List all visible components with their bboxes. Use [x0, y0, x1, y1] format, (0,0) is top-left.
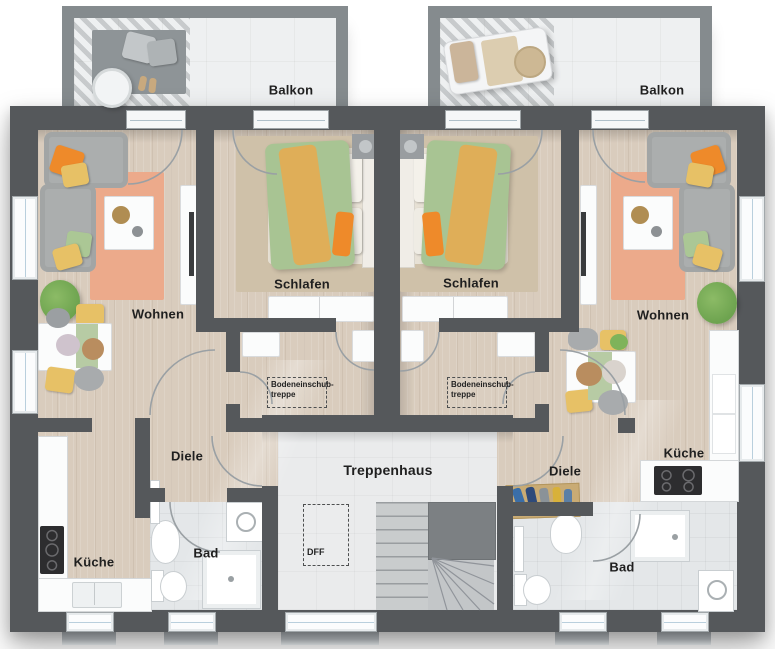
room-label-wohnen-left: Wohnen [132, 307, 184, 322]
wall-right-corridor-east-upper [535, 332, 549, 372]
decor-bowl-left [112, 206, 130, 224]
window-reveal-1 [62, 632, 116, 645]
wreath-right [576, 362, 602, 386]
room-label-kueche-right: Küche [664, 446, 705, 461]
chair-yellow-bottom-left [44, 366, 75, 394]
window-bottom-bath-left [168, 612, 216, 632]
floorplan-canvas: Balkon Balkon Wohnen Schlafen Küche Bad … [0, 0, 775, 649]
room-label-schlafen-left: Schlafen [274, 277, 330, 292]
bath-right-sink [550, 514, 582, 554]
wardrobe-left-door-gap [319, 297, 320, 319]
storage-cabinet-right-2 [401, 330, 424, 362]
window-reveal-4 [555, 632, 609, 645]
room-label-bad-left: Bad [193, 546, 218, 561]
lamp-left [359, 140, 372, 153]
room-label-treppenhaus: Treppenhaus [343, 462, 432, 478]
storage-cabinet-right-1 [497, 332, 535, 357]
window-reveal-5 [657, 632, 711, 645]
decor-candle-right [651, 226, 662, 237]
wall-left-kitchen-hall-divider [135, 418, 150, 518]
kitchen-right-cabinet-2 [712, 414, 736, 454]
balcony-door-wohnen-right [591, 110, 649, 129]
room-label-wohnen-right: Wohnen [637, 308, 689, 323]
tv-right [581, 212, 586, 276]
room-label-diele-left: Diele [171, 449, 203, 464]
wall-right-corridor-south [401, 418, 549, 432]
bath-left-sink [151, 520, 180, 564]
label-attic-right-line1: Bodeneinschub- [451, 380, 514, 389]
balcony-left-rail-left [62, 6, 74, 106]
chair-yellow-top-left [76, 304, 104, 325]
balcony-door-wohnen-left [126, 110, 186, 129]
kitchen-right-cabinet-1 [712, 374, 736, 414]
window-right-wall-1 [739, 196, 765, 282]
stair-core [428, 502, 496, 560]
wardrobe-right-door-gap [453, 297, 454, 319]
room-label-balkon-right: Balkon [640, 83, 685, 98]
window-left-wall-1 [12, 196, 38, 280]
window-reveal-2 [164, 632, 218, 645]
sink-kitchen-left [72, 582, 122, 608]
toilet-right-bowl [523, 575, 551, 605]
balcony-right-rail-top [428, 6, 712, 18]
balcony-left-rail-right [336, 6, 348, 106]
window-right-wall-kitchen [739, 384, 765, 462]
wreath-left [82, 338, 104, 360]
room-label-schlafen-right: Schlafen [443, 276, 499, 291]
label-attic-left-line2: treppe [271, 390, 295, 399]
coffee-table-left [104, 196, 154, 250]
balcony-side-table [92, 68, 132, 108]
shower-right-drain [672, 534, 678, 540]
wicker-basket [514, 46, 546, 78]
storage-cabinet-left-2 [352, 330, 375, 362]
storage-cabinet-left-1 [242, 332, 280, 357]
balcony-door-schlafen-right [445, 110, 521, 129]
coffee-table-right [623, 196, 673, 250]
label-attic-left: Bodeneinschub- treppe [271, 380, 334, 401]
stair-winders [428, 558, 494, 610]
wall-stairwell-west [262, 486, 278, 610]
bed-right-headboard [399, 146, 415, 268]
wall-right-bath-north [513, 502, 593, 516]
chair-gray-left [74, 366, 104, 391]
wall-right-bedroom-south [439, 318, 561, 332]
wall-right-hall-pillar [618, 418, 635, 433]
label-attic-right-line2: treppe [451, 390, 475, 399]
wall-left-bath-north-2 [227, 488, 262, 502]
cooktop-right [654, 466, 702, 495]
cooktop-left [40, 526, 64, 574]
chair-gray-bottom-right [598, 390, 628, 415]
window-bottom-kitchen-left [66, 612, 114, 632]
label-dff: DFF [307, 547, 325, 559]
room-label-balkon-left: Balkon [269, 83, 314, 98]
balcony-pillow-2 [146, 38, 177, 67]
wall-left-kitchen-north [38, 418, 92, 432]
balcony-left-rail-top [62, 6, 348, 18]
bouquet-left [56, 334, 80, 356]
wall-left-bath-north-1 [135, 488, 165, 502]
window-bottom-bath-right-2 [661, 612, 709, 632]
wall-left-corridor-west-upper [226, 332, 240, 372]
decor-bowl-right [631, 206, 649, 224]
shower-left-drain [228, 576, 234, 582]
towel-radiator-right [514, 526, 524, 572]
room-label-kueche-left: Küche [74, 555, 115, 570]
lamp-right [404, 140, 417, 153]
sink-left-divider [94, 583, 95, 605]
vase-dried-flowers-left [46, 308, 70, 328]
toilet-left-bowl [160, 571, 187, 602]
washer-left-door [236, 512, 256, 532]
balcony-right-rail-right [700, 6, 712, 106]
wall-right-living-bedroom [561, 130, 579, 332]
balcony-door-schlafen-left [253, 110, 329, 129]
window-bottom-bath-right-1 [559, 612, 607, 632]
window-bottom-stairwell [285, 612, 377, 632]
washer-right-door [707, 580, 727, 600]
wall-central [374, 130, 400, 432]
towel-radiator-left [150, 480, 160, 524]
bouquet-right [602, 360, 626, 384]
balcony-right-rail-left [428, 6, 440, 106]
table-plant-right [610, 334, 628, 350]
label-attic-left-line1: Bodeneinschub- [271, 380, 334, 389]
window-left-wall-2 [12, 350, 38, 414]
label-attic-right: Bodeneinschub- treppe [451, 380, 514, 401]
shower-right [630, 510, 690, 562]
pillow-sand-left [60, 162, 89, 188]
window-reveal-3 [281, 632, 379, 645]
wall-stairwell-east [497, 486, 513, 610]
pillow-sand-right [685, 162, 714, 188]
room-label-bad-right: Bad [609, 560, 634, 575]
wall-left-bedroom-south [214, 318, 336, 332]
stair-flight-left [376, 502, 428, 610]
plant-living-right [697, 282, 737, 324]
room-label-diele-right: Diele [549, 464, 581, 479]
tv-left [189, 212, 194, 276]
wall-left-living-bedroom [196, 130, 214, 332]
decor-candle-left [132, 226, 143, 237]
